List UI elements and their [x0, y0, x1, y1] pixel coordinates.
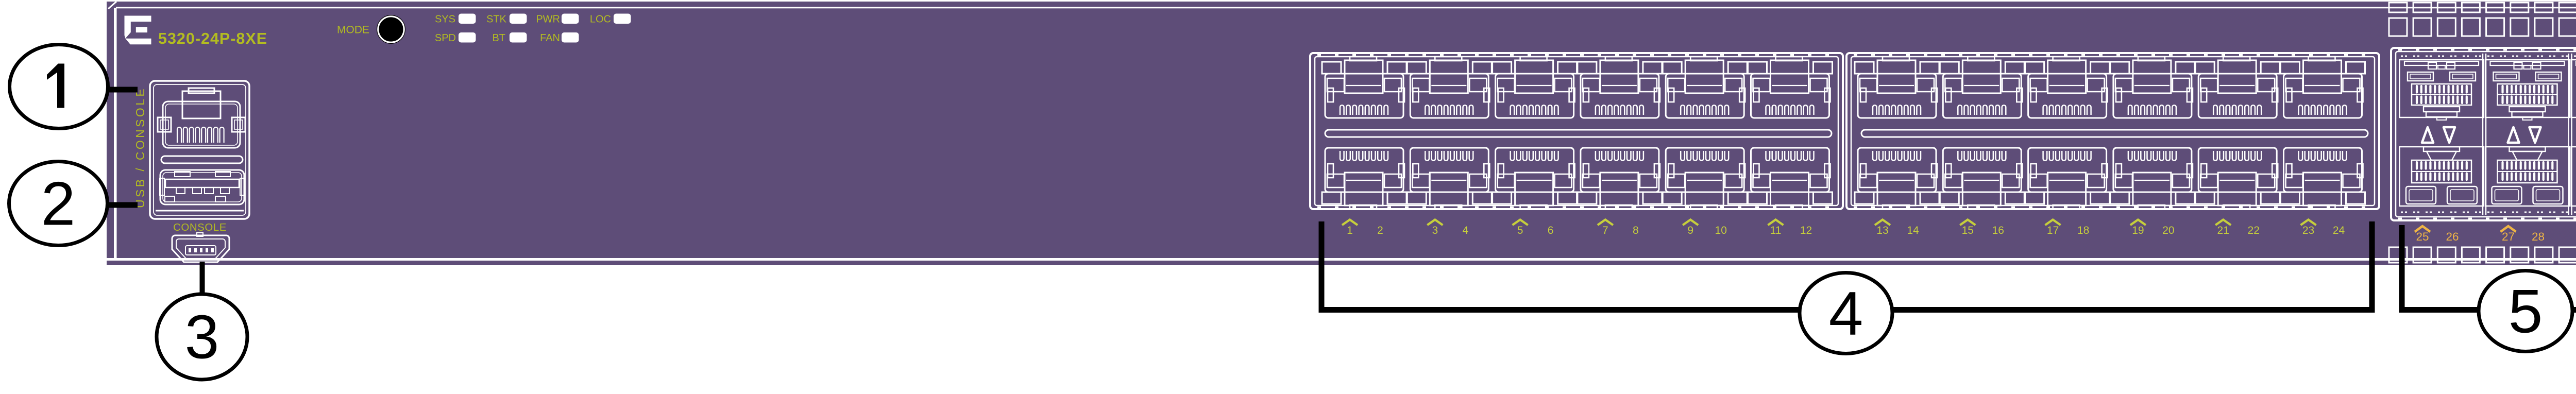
svg-text:4: 4 — [1462, 225, 1468, 236]
svg-text:19: 19 — [2132, 225, 2144, 236]
svg-text:13: 13 — [1876, 225, 1888, 236]
svg-text:8: 8 — [1633, 225, 1639, 236]
svg-text:10: 10 — [1715, 225, 1727, 236]
svg-text:SYS: SYS — [435, 14, 455, 25]
svg-text:2: 2 — [1377, 225, 1383, 236]
svg-text:1: 1 — [1347, 225, 1353, 236]
svg-text:6: 6 — [1548, 225, 1554, 236]
svg-text:22: 22 — [2248, 225, 2260, 236]
svg-text:25: 25 — [2416, 230, 2429, 243]
svg-text:5320-24P-8XE: 5320-24P-8XE — [158, 30, 267, 47]
svg-text:15: 15 — [1962, 225, 1974, 236]
svg-text:FAN: FAN — [540, 32, 560, 44]
svg-text:21: 21 — [2217, 225, 2229, 236]
svg-text:26: 26 — [2446, 230, 2459, 243]
svg-text:3: 3 — [185, 303, 219, 372]
svg-text:9: 9 — [1687, 225, 1693, 236]
svg-text:18: 18 — [2077, 225, 2089, 236]
svg-text:5: 5 — [1517, 225, 1523, 236]
svg-text:CONSOLE: CONSOLE — [173, 221, 227, 233]
svg-text:PWR: PWR — [536, 14, 560, 25]
svg-text:3: 3 — [1432, 225, 1438, 236]
svg-text:23: 23 — [2302, 225, 2314, 236]
svg-text:24: 24 — [2333, 225, 2345, 236]
svg-text:11: 11 — [1770, 225, 1782, 236]
svg-text:28: 28 — [2532, 230, 2545, 243]
svg-text:BT: BT — [492, 32, 505, 44]
svg-text:16: 16 — [1992, 225, 2004, 236]
svg-text:14: 14 — [1907, 225, 1919, 236]
svg-text:MODE: MODE — [337, 24, 369, 36]
svg-text:SPD: SPD — [435, 32, 456, 44]
svg-text:7: 7 — [1602, 225, 1608, 236]
svg-text:5: 5 — [2509, 277, 2543, 346]
svg-text:17: 17 — [2047, 225, 2059, 236]
svg-text:STK: STK — [486, 14, 507, 25]
svg-text:20: 20 — [2162, 225, 2174, 236]
svg-text:LOC: LOC — [590, 14, 611, 25]
svg-text:27: 27 — [2502, 230, 2515, 243]
svg-text:4: 4 — [1829, 279, 1863, 348]
svg-text:USB / CONSOLE: USB / CONSOLE — [133, 87, 147, 208]
svg-text:12: 12 — [1800, 225, 1812, 236]
svg-text:2: 2 — [41, 169, 76, 238]
